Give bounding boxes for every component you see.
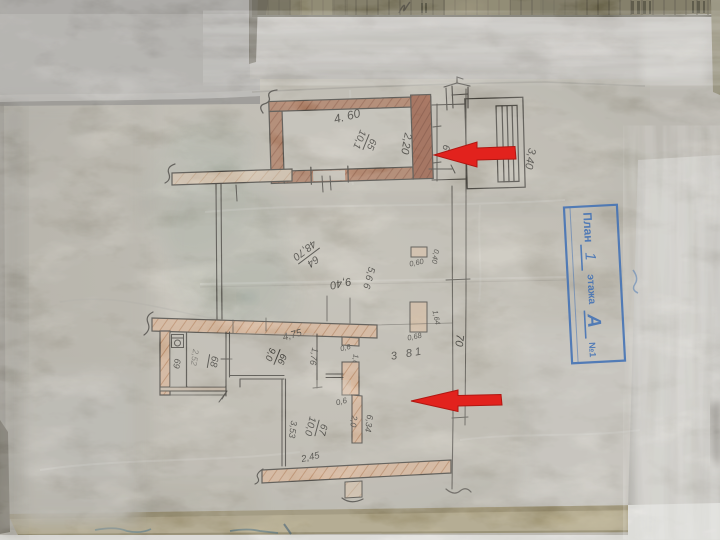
svg-text:№1: №1 bbox=[587, 342, 598, 358]
svg-text:1: 1 bbox=[581, 252, 598, 261]
svg-text:А: А bbox=[583, 313, 605, 329]
svg-text:План: План bbox=[580, 212, 596, 243]
svg-text:этажа: этажа bbox=[584, 274, 598, 305]
